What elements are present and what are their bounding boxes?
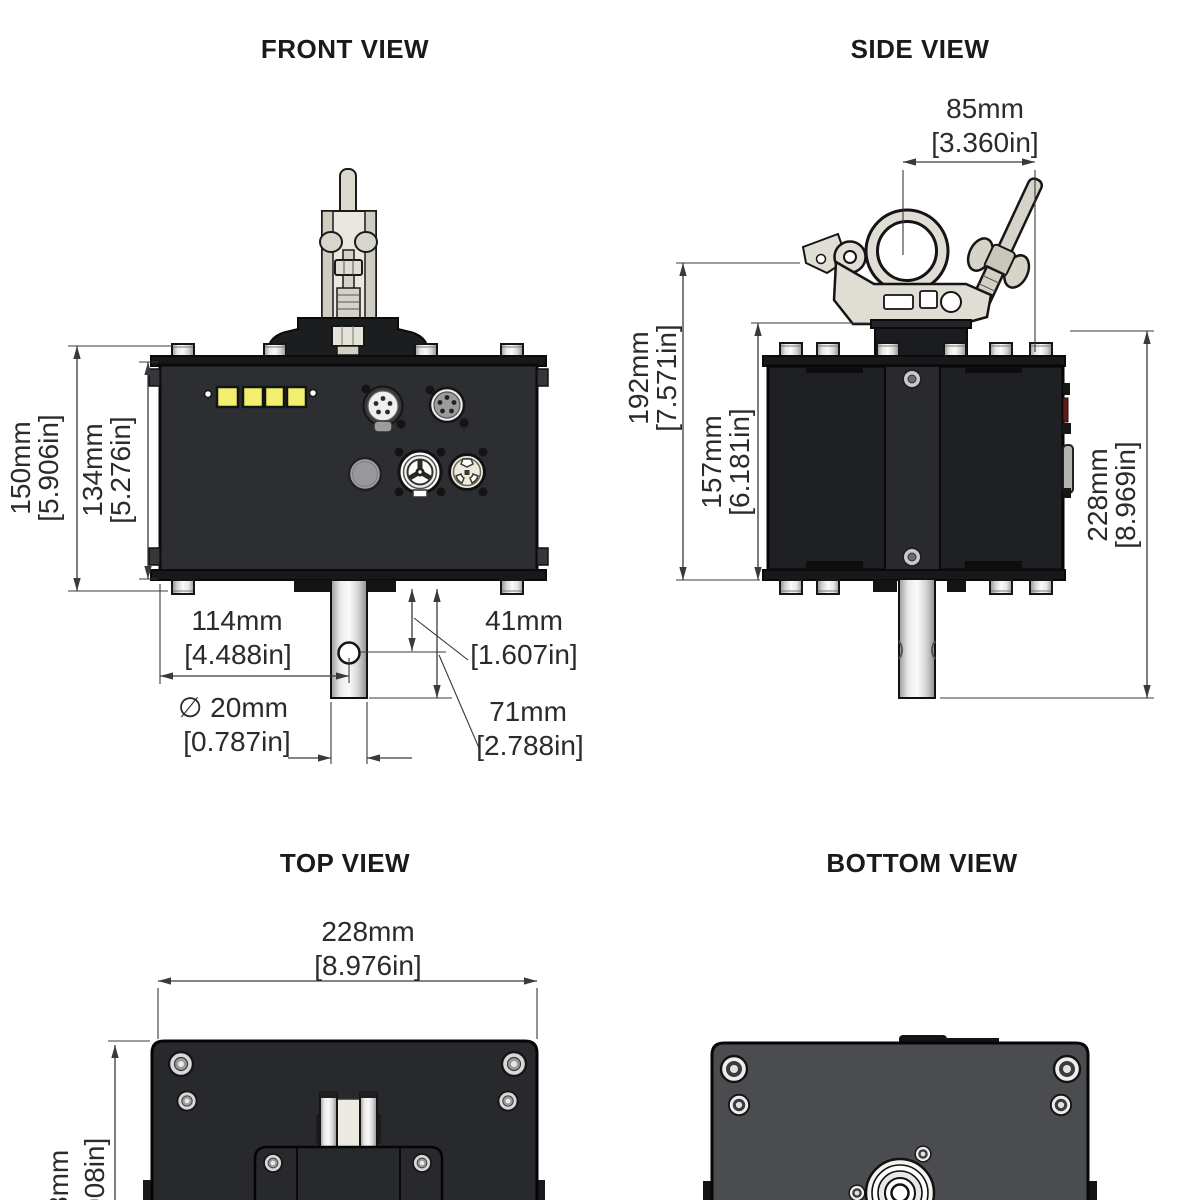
side-view: SIDE VIEW (623, 34, 1154, 698)
connector-stub (1062, 423, 1071, 434)
foot (944, 343, 966, 357)
dim-label: 008in] (79, 1138, 110, 1200)
side-tab (149, 548, 160, 565)
clamp-tube-hole (878, 222, 937, 281)
side-enclosure (763, 343, 1073, 594)
dim-label: [6.181in] (724, 408, 755, 515)
led-square (217, 387, 238, 407)
side-pole (899, 579, 935, 698)
led-indicators (205, 387, 317, 407)
led-square (265, 387, 284, 407)
handle-notch (806, 561, 863, 568)
dim-partial-depth: 8mm 008in] (43, 1041, 150, 1200)
dim-label: [8.976in] (314, 950, 421, 981)
screw (1051, 1095, 1071, 1115)
dim-41mm: 41mm [1.607in] (360, 589, 578, 670)
foot (990, 580, 1012, 594)
drawing-sheet: FRONT VIEW (0, 0, 1200, 1200)
round-button (349, 458, 381, 490)
side-tab (537, 548, 548, 565)
panel-screw (903, 370, 921, 388)
bottom-view-title: BOTTOM VIEW (826, 848, 1017, 878)
foot (780, 343, 802, 357)
dim-label: 85mm (946, 93, 1024, 124)
side-clamp-assembly (803, 167, 1066, 324)
side-tab (537, 369, 548, 386)
side-view-title: SIDE VIEW (851, 34, 990, 64)
dim-label: [2.788in] (476, 730, 583, 761)
foot (990, 343, 1012, 357)
dim-label: [5.276in] (105, 416, 136, 523)
dim-label: [4.488in] (184, 639, 291, 670)
screw (729, 1095, 749, 1115)
front-view: FRONT VIEW (5, 34, 584, 764)
top-view-title: TOP VIEW (280, 848, 410, 878)
handle-notch (806, 366, 863, 373)
dim-label: ∅ 20mm (178, 692, 288, 723)
screw (498, 1091, 517, 1110)
foot (780, 580, 802, 594)
front-clamp-assembly (320, 169, 377, 321)
dim-label: 157mm (696, 415, 727, 508)
dim-228mm-top: 228mm [8.976in] (158, 916, 537, 1039)
dim-label: 228mm (1082, 448, 1113, 541)
screw (264, 1154, 282, 1172)
led-square (287, 387, 306, 407)
dim-label: [5.906in] (33, 414, 64, 521)
foot (1030, 343, 1052, 357)
led-square (243, 387, 263, 407)
foot (501, 580, 523, 594)
screw (849, 1185, 865, 1200)
dim-label: [7.571in] (651, 324, 682, 431)
dim-label: [8.969in] (1110, 441, 1141, 548)
dim-label: [1.607in] (470, 639, 577, 670)
dim-label: 228mm (321, 916, 414, 947)
handle-notch (965, 561, 1022, 568)
screw (915, 1146, 931, 1162)
dim-label: 71mm (489, 696, 567, 727)
screw (1054, 1056, 1080, 1082)
connector-stub (1063, 488, 1071, 498)
side-connector (1063, 445, 1073, 493)
screw (169, 1052, 193, 1076)
screw (413, 1154, 431, 1172)
indicator-dot (310, 390, 317, 397)
dim-label: 41mm (485, 605, 563, 636)
screw (721, 1056, 747, 1082)
top-view: TOP VIEW 228mm [8.976in] (43, 848, 545, 1200)
foot (817, 343, 839, 357)
dim-label: 8mm (43, 1150, 74, 1200)
side-tab (149, 369, 160, 386)
foot (1030, 580, 1052, 594)
foot (817, 580, 839, 594)
panel-screw (903, 548, 921, 566)
foot (172, 580, 194, 594)
dim-label: 150mm (5, 421, 36, 514)
dim-label: 192mm (623, 331, 654, 424)
technical-drawing-page: FRONT VIEW (0, 0, 1200, 1200)
screw (177, 1091, 196, 1110)
dim-label: 134mm (77, 423, 108, 516)
foot (877, 343, 899, 357)
dim-134mm: 134mm [5.276in] (77, 362, 158, 579)
handle-notch (965, 366, 1022, 373)
dim-20mm-diameter: ∅ 20mm [0.787in] (178, 692, 412, 764)
dim-label: 114mm (191, 605, 282, 636)
top-raised-plate (255, 1147, 442, 1200)
front-view-title: FRONT VIEW (261, 34, 429, 64)
dim-label: [0.787in] (183, 726, 290, 757)
indicator-dot (205, 391, 212, 398)
screw (502, 1052, 526, 1076)
dim-label: [3.360in] (931, 127, 1038, 158)
powercon-connector (395, 448, 446, 498)
antenna-stub (1063, 383, 1070, 395)
dim-114mm: 114mm [4.488in] (160, 584, 349, 684)
front-pole (294, 580, 396, 698)
switch-strip (1063, 398, 1068, 422)
bottom-view: BOTTOM VIEW (703, 848, 1097, 1200)
